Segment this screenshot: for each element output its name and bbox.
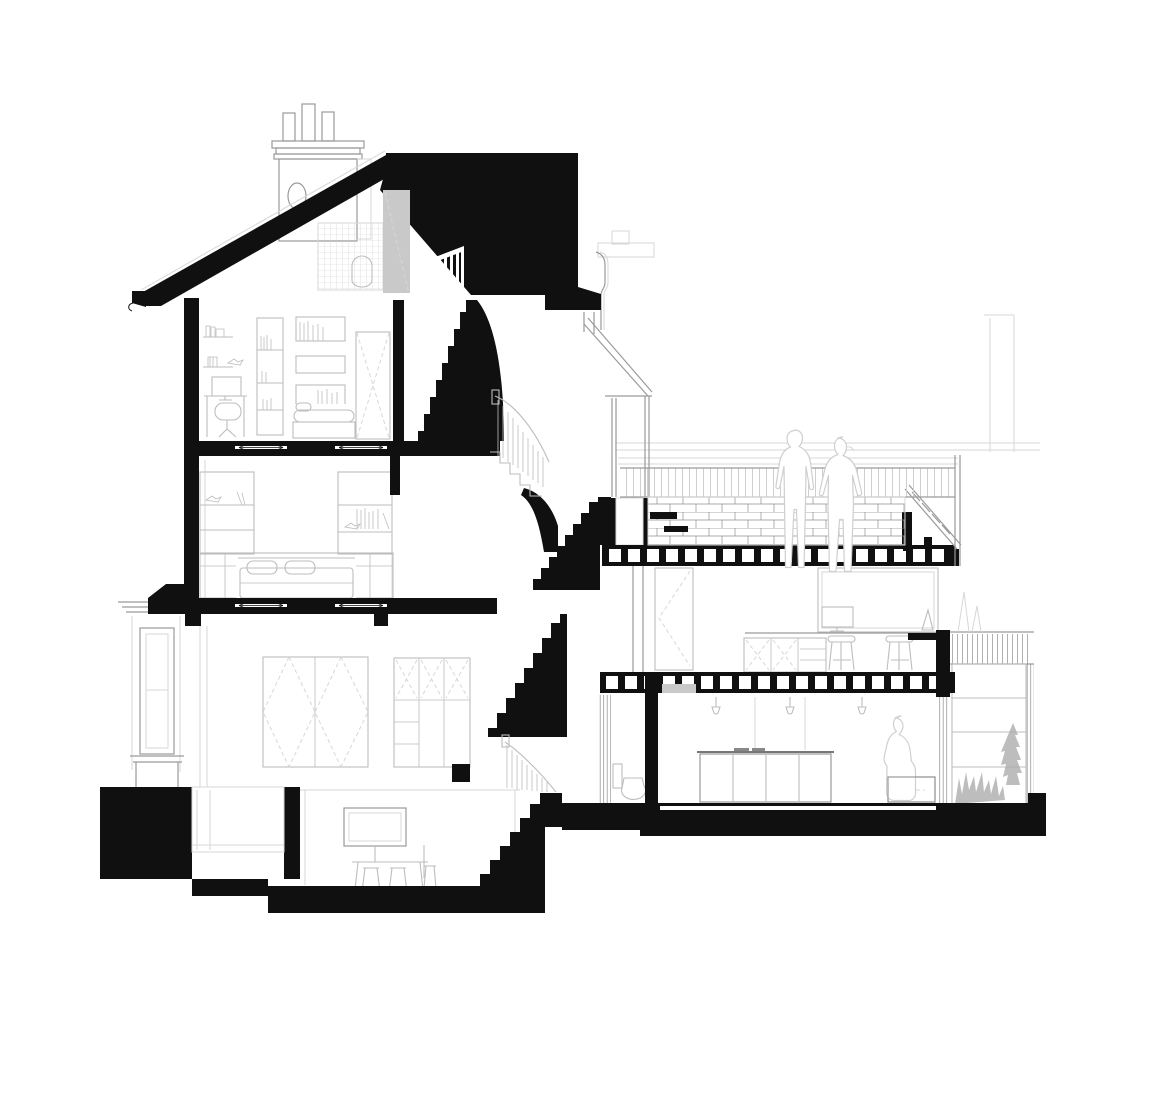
brick-lintel: [650, 512, 677, 519]
background-building-outlines: [596, 231, 1040, 464]
study-room: [633, 565, 938, 672]
bay-window-sash: [146, 634, 168, 748]
wall-sconce: [858, 697, 866, 714]
bedroom-floor-slab: [148, 598, 497, 614]
joist-opening: [647, 549, 659, 562]
chimney-pot: [283, 113, 295, 141]
glazing-jamb-hatch: [1026, 664, 1034, 804]
island-doors: [733, 754, 799, 802]
stool-seat: [828, 636, 855, 642]
monitor: [212, 377, 241, 396]
desk-chair-back: [215, 403, 241, 420]
wc-panel-wall: [598, 695, 611, 805]
joist-opening: [723, 549, 735, 562]
loft-stair-wall: [393, 300, 404, 441]
chimney-pot: [302, 104, 315, 141]
roof-left-eave: [132, 291, 146, 307]
low-cabinets: [744, 638, 826, 672]
joist-opening: [628, 549, 640, 562]
joist-opening: [761, 549, 773, 562]
stair-newel-base: [452, 764, 470, 782]
folding-door-fold-lines: [263, 657, 368, 767]
joist-opening: [609, 549, 621, 562]
joist-opening: [856, 549, 868, 562]
joist-opening: [720, 676, 732, 689]
wall-sconce: [712, 697, 720, 714]
stair-wall-lines: [633, 565, 643, 672]
ceiling-corbel: [374, 614, 388, 626]
stool: [828, 636, 855, 670]
bookcase-books: [261, 335, 271, 410]
plant-tips-outline: [958, 592, 981, 632]
leaning-book: [237, 492, 245, 505]
grass-plants: [955, 772, 1005, 804]
bathroom-tiles: [318, 223, 383, 290]
joist-opening: [625, 676, 637, 689]
stair-string-curved: [521, 488, 558, 552]
joist-opening: [818, 549, 830, 562]
rear-chimney-outline: [612, 231, 629, 244]
joist-opening: [853, 676, 865, 689]
skylight-frame: [611, 498, 616, 545]
wall-screen: [344, 808, 406, 846]
foundation-left-block: [100, 787, 192, 879]
joist-opening: [796, 676, 808, 689]
dinosaur-toy: [345, 523, 360, 529]
rear-parapet-outline: [598, 243, 654, 257]
dinosaur-toy: [228, 359, 243, 365]
loft-door-swing: [357, 333, 389, 438]
basement-front-room: [192, 787, 284, 852]
wall-sconce: [786, 697, 794, 714]
kitchen-wall-panel-lines: [755, 697, 805, 750]
joist-opening: [739, 676, 751, 689]
chimney-cap: [274, 154, 362, 159]
garden-facade: [948, 592, 1034, 804]
bedroom-wall-stub: [390, 453, 400, 495]
joist-opening: [913, 549, 925, 562]
stair-flight-loft: [418, 300, 504, 441]
cooktop: [734, 748, 749, 751]
living-room: [200, 626, 470, 787]
study-door: [655, 568, 693, 670]
stool: [886, 636, 913, 670]
worktop-end: [908, 633, 938, 640]
study-monitor: [822, 607, 853, 627]
stair-flight-ground-floor: [488, 614, 567, 737]
joist-opening: [891, 676, 903, 689]
picture-window: [818, 568, 938, 632]
bay-sides: [132, 616, 180, 772]
joist-opening: [685, 549, 697, 562]
plant-pot: [208, 357, 217, 367]
basement-walls: [300, 790, 520, 885]
rear-glazing-jamb: [938, 697, 948, 803]
joist-opening: [704, 549, 716, 562]
wall-box-shelf: [296, 356, 345, 373]
joist-opening: [701, 676, 713, 689]
wall-screen-inner: [349, 813, 401, 841]
chair: [424, 845, 436, 888]
wall-sconces: [712, 697, 866, 714]
roof-right-mass: [380, 153, 601, 310]
joist-opening: [872, 676, 884, 689]
neighbour-outline: [984, 315, 1014, 452]
ceiling-corbel: [185, 614, 201, 626]
skylight-frame: [643, 498, 648, 545]
section-drawing: [0, 0, 1173, 1100]
chimney-pot: [322, 112, 334, 141]
joist-opening: [666, 549, 678, 562]
joist-opening: [606, 676, 618, 689]
wall-lines: [200, 626, 207, 787]
glazed-partition: [394, 658, 470, 767]
slope-foot: [924, 537, 932, 549]
joist-opening: [875, 549, 887, 562]
monitor-stand: [219, 396, 232, 400]
chimney-cap: [276, 148, 360, 154]
cooktop: [752, 748, 765, 751]
partition-mullions: [394, 658, 470, 767]
wc-cistern: [613, 764, 622, 788]
desk-lamp: [922, 610, 933, 630]
brick-parapet: [648, 497, 905, 545]
screen-stand: [362, 846, 388, 862]
desk-chair-legs: [219, 420, 236, 437]
partition-glass-marks: [396, 660, 468, 698]
brick-lintel: [664, 526, 688, 532]
books-on-shelf: [206, 326, 224, 337]
bay-window: [118, 602, 188, 787]
wall-box-shelf: [296, 317, 345, 341]
wall-box-books: [300, 321, 323, 341]
kitchen-left-wall: [645, 672, 658, 807]
books: [357, 508, 389, 529]
bookcase-shelves: [257, 350, 283, 410]
slope-end-block: [947, 549, 959, 566]
joist-opening: [777, 676, 789, 689]
cabinet-divisions: [771, 638, 826, 672]
loft-bed-mask: [293, 404, 355, 438]
joist-opening: [758, 676, 770, 689]
shelf-unit-left: [200, 472, 254, 554]
joist-opening: [834, 676, 846, 689]
joist-opening: [815, 676, 827, 689]
person-kitchen: [884, 716, 915, 801]
terrace-upstand: [598, 497, 611, 545]
bookcase: [257, 318, 283, 435]
wall-box-books: [318, 389, 337, 406]
bed-mask: [236, 556, 356, 598]
basement-wall: [284, 787, 300, 879]
chimney-cap: [272, 141, 364, 148]
joist-opening: [910, 676, 922, 689]
bay-window-frame: [140, 628, 174, 754]
bay-sill: [130, 756, 184, 787]
dinosaur-toy: [206, 496, 221, 502]
stair-railing-ground: [502, 735, 556, 792]
cladding-slats: [950, 634, 1032, 664]
architectural-section-page: [0, 0, 1173, 1100]
skylight-box: [616, 498, 643, 545]
study-right-column: [936, 630, 950, 697]
threshold-panel: [662, 684, 696, 693]
garden-wall-pier: [1028, 793, 1046, 805]
joist-opening: [932, 549, 944, 562]
gutter-curl: [129, 303, 133, 311]
folding-doors: [263, 657, 368, 767]
joist-opening: [742, 549, 754, 562]
picture-window-inner: [822, 572, 934, 628]
stool-legs: [829, 642, 854, 670]
terrace-background-rails: [615, 443, 1040, 464]
shelf-unit-left-shelves: [200, 505, 254, 530]
stool-legs: [887, 642, 912, 670]
cornice-step: [148, 584, 199, 598]
bedroom: [200, 460, 393, 598]
study-door-swing: [659, 571, 690, 666]
kitchen-floor-line: [660, 806, 936, 810]
wc-toilet: [622, 778, 646, 799]
